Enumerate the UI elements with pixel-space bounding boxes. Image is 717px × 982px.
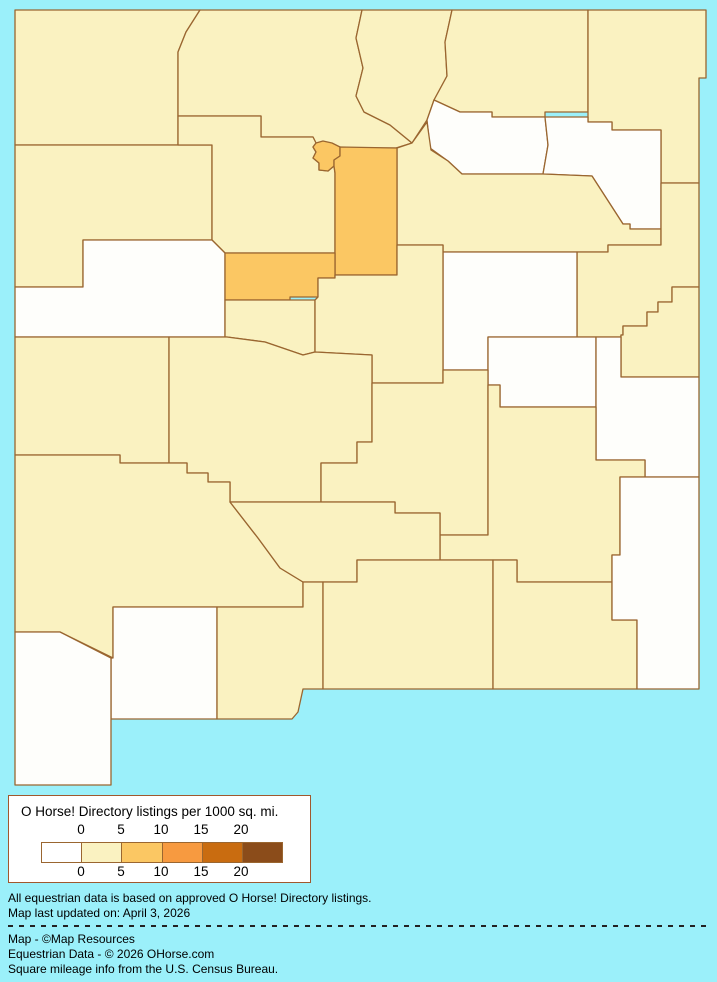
county-santa-fe: [334, 147, 397, 275]
legend-tick: 10: [139, 822, 183, 837]
page: { "colors": { "background": "#9BF0FA", "…: [0, 0, 717, 982]
legend-swatch-4: [202, 842, 243, 863]
legend-swatch-1: [81, 842, 122, 863]
legend-color-scale: [41, 842, 283, 863]
legend-box: O Horse! Directory listings per 1000 sq.…: [8, 795, 311, 883]
county-colfax: [434, 10, 588, 117]
legend-tick: 5: [99, 864, 143, 879]
new-mexico-county-map: [0, 0, 717, 790]
legend-swatch-5: [242, 842, 283, 863]
dashed-divider: [8, 925, 710, 927]
footer-updated-note: Map last updated on: April 3, 2026: [8, 906, 190, 920]
footer-census-credit: Square mileage info from the U.S. Census…: [8, 962, 278, 976]
legend-tick: 0: [59, 822, 103, 837]
footer-data-note: All equestrian data is based on approved…: [8, 891, 372, 905]
legend-title: O Horse! Directory listings per 1000 sq.…: [21, 804, 278, 819]
footer-map-credit: Map - ©Map Resources: [8, 932, 135, 946]
legend-swatch-3: [162, 842, 203, 863]
legend-tick: 20: [219, 864, 263, 879]
legend-tick: 10: [139, 864, 183, 879]
legend-ticks-top: 0 5 10 15 20: [9, 822, 310, 838]
county-luna: [111, 607, 217, 719]
legend-swatch-2: [121, 842, 162, 863]
footer-data-credit: Equestrian Data - © 2026 OHorse.com: [8, 947, 214, 961]
legend-tick: 0: [59, 864, 103, 879]
legend-tick: 15: [179, 822, 223, 837]
legend-swatch-0: [41, 842, 82, 863]
county-catron: [15, 337, 169, 463]
legend-ticks-bottom: 0 5 10 15 20: [9, 864, 310, 880]
county-hidalgo: [15, 632, 111, 785]
legend-tick: 5: [99, 822, 143, 837]
legend-tick: 15: [179, 864, 223, 879]
county-de-baca: [488, 337, 596, 407]
county-san-juan: [15, 10, 200, 145]
legend-tick: 20: [219, 822, 263, 837]
